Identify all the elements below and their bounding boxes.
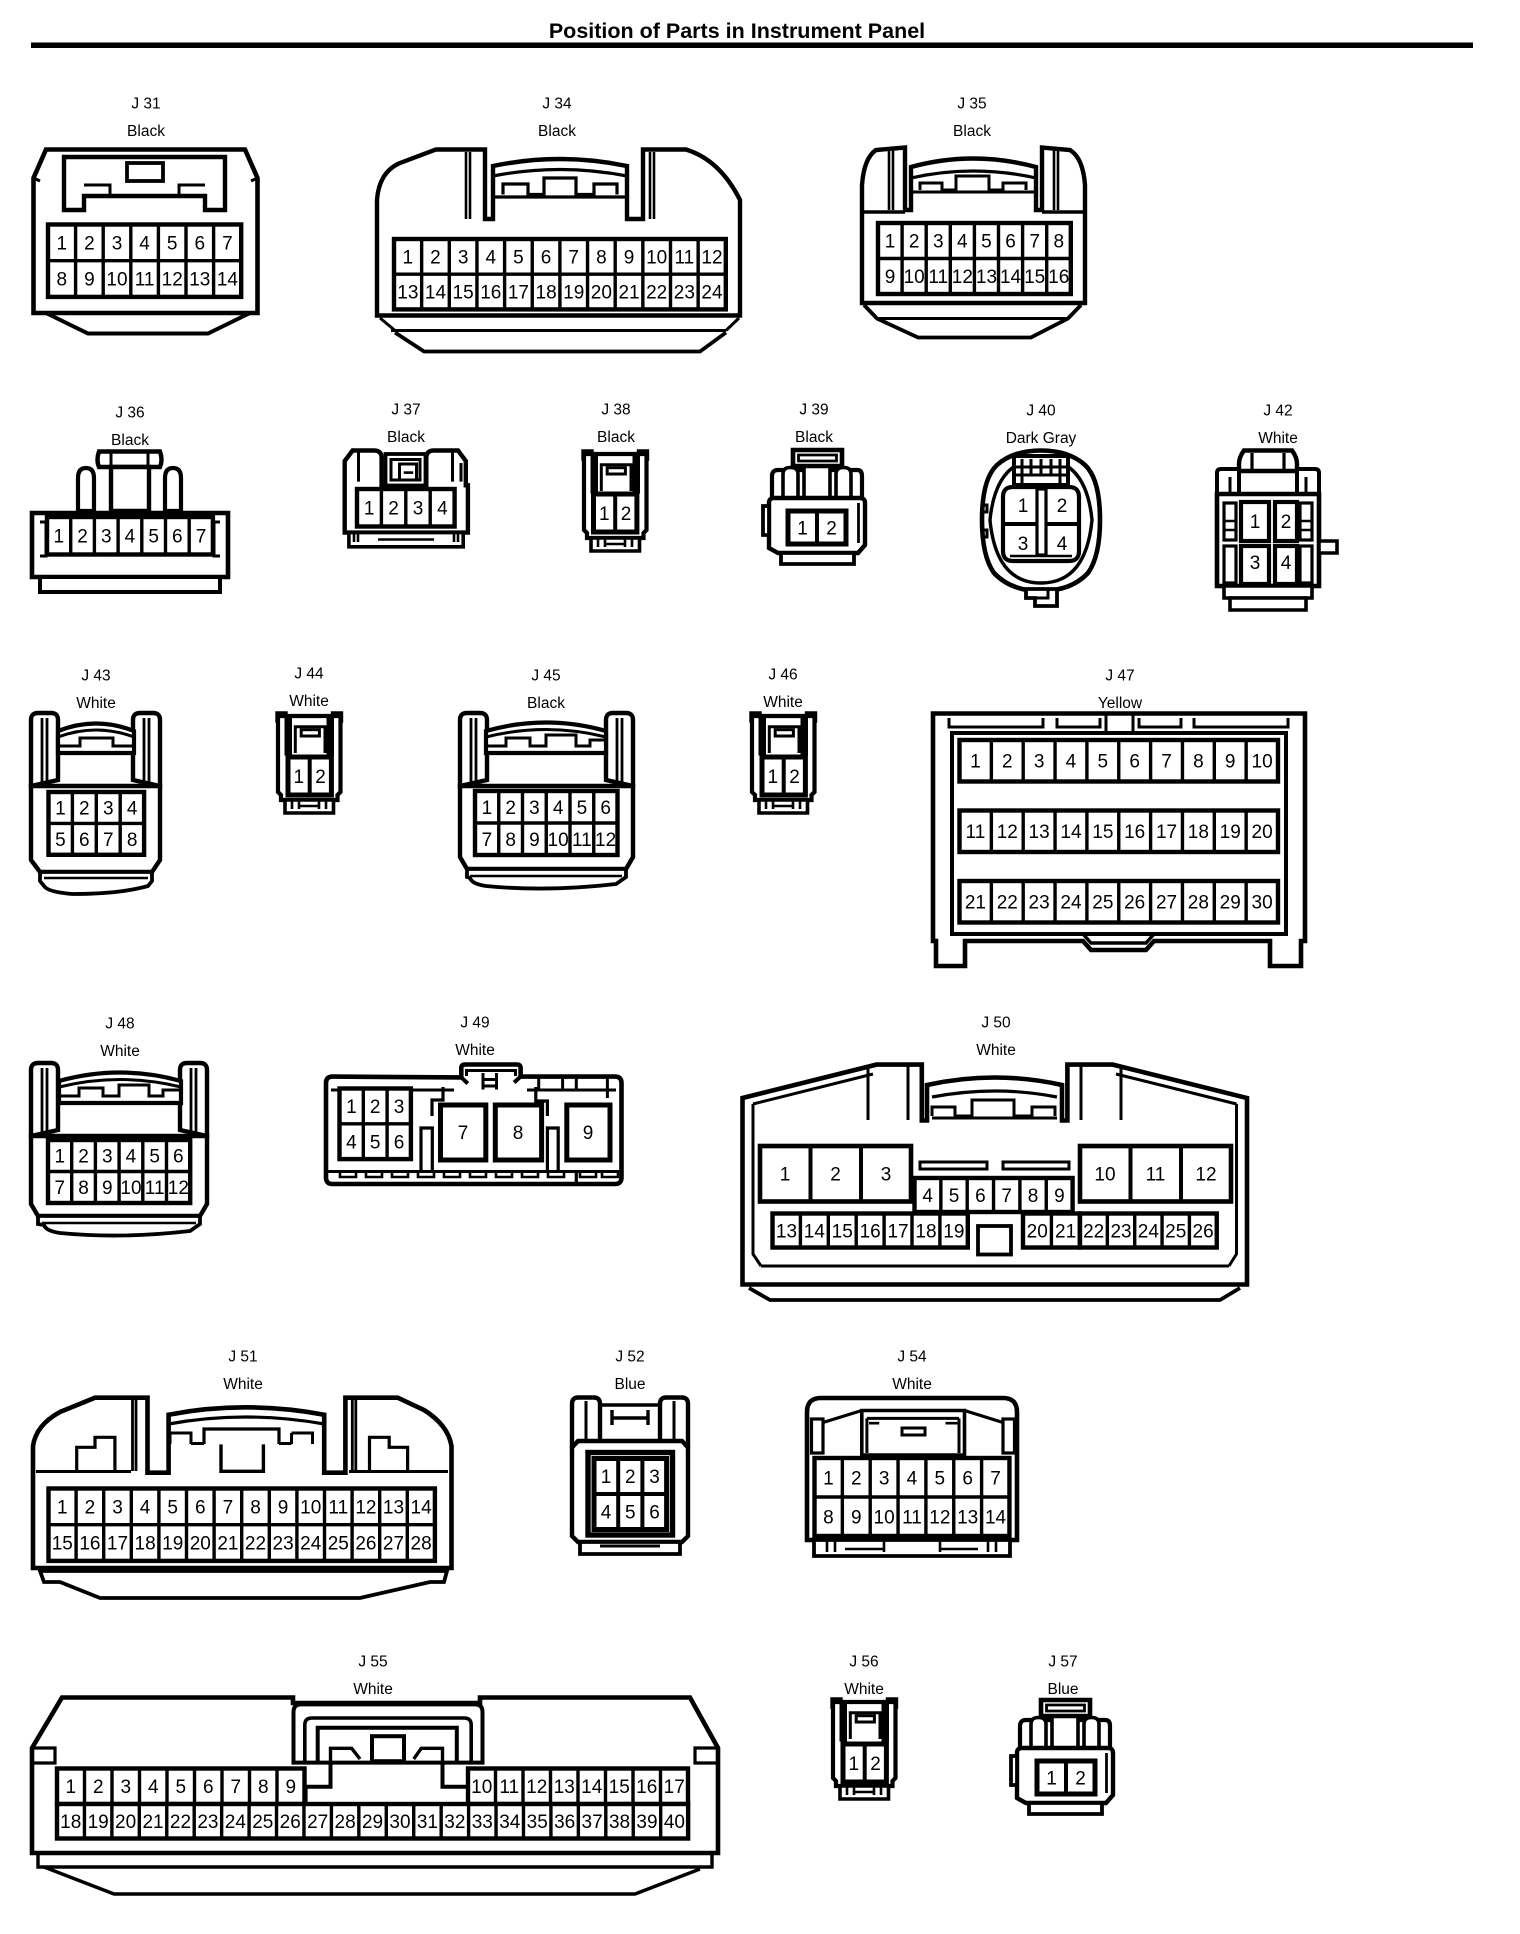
svg-text:6: 6: [173, 1147, 184, 1168]
svg-text:J 43: J 43: [81, 668, 110, 685]
svg-text:12: 12: [952, 267, 973, 288]
svg-text:2: 2: [93, 1777, 104, 1798]
svg-text:White: White: [892, 1376, 932, 1393]
svg-text:2: 2: [621, 504, 632, 525]
svg-text:1: 1: [1046, 1768, 1057, 1789]
svg-text:3: 3: [649, 1467, 660, 1488]
svg-text:1: 1: [54, 527, 65, 548]
svg-text:4: 4: [957, 232, 968, 253]
svg-text:19: 19: [943, 1221, 964, 1242]
svg-text:9: 9: [1225, 752, 1236, 773]
svg-text:1: 1: [849, 1754, 860, 1775]
svg-text:34: 34: [499, 1812, 521, 1833]
svg-text:1: 1: [57, 1498, 68, 1519]
svg-text:Black: Black: [953, 123, 991, 140]
svg-text:13: 13: [397, 283, 418, 304]
svg-text:22: 22: [170, 1812, 191, 1833]
svg-text:8: 8: [1193, 752, 1204, 773]
svg-text:Black: Black: [127, 123, 165, 140]
svg-text:2: 2: [789, 767, 800, 788]
svg-text:Black: Black: [527, 695, 565, 712]
svg-text:21: 21: [217, 1534, 238, 1555]
svg-text:29: 29: [1220, 893, 1241, 914]
svg-text:J 55: J 55: [358, 1654, 387, 1671]
svg-text:6: 6: [1005, 232, 1016, 253]
svg-text:36: 36: [554, 1812, 575, 1833]
svg-text:3: 3: [413, 499, 424, 520]
svg-text:9: 9: [529, 830, 540, 851]
svg-text:21: 21: [965, 893, 986, 914]
svg-text:7: 7: [568, 248, 579, 269]
svg-text:8: 8: [1053, 232, 1064, 253]
svg-text:7: 7: [103, 830, 114, 851]
svg-text:7: 7: [55, 1178, 66, 1199]
svg-text:17: 17: [887, 1221, 908, 1242]
svg-text:4: 4: [346, 1132, 357, 1153]
svg-text:4: 4: [127, 799, 138, 820]
svg-text:Black: Black: [795, 429, 833, 446]
svg-text:1: 1: [599, 504, 610, 525]
svg-text:2: 2: [388, 499, 399, 520]
svg-text:8: 8: [513, 1123, 524, 1144]
svg-text:31: 31: [417, 1812, 438, 1833]
svg-text:18: 18: [915, 1221, 936, 1242]
svg-text:5: 5: [981, 232, 992, 253]
svg-text:2: 2: [625, 1467, 636, 1488]
svg-text:28: 28: [1188, 893, 1209, 914]
svg-text:3: 3: [102, 1147, 113, 1168]
svg-text:23: 23: [674, 283, 695, 304]
svg-text:7: 7: [990, 1468, 1001, 1489]
svg-text:10: 10: [646, 248, 667, 269]
svg-text:9: 9: [885, 267, 896, 288]
svg-text:11: 11: [966, 822, 986, 843]
svg-text:4: 4: [1057, 534, 1068, 555]
svg-text:1: 1: [403, 248, 414, 269]
svg-text:8: 8: [823, 1507, 834, 1528]
svg-text:10: 10: [874, 1507, 895, 1528]
svg-text:2: 2: [1075, 1768, 1086, 1789]
svg-text:9: 9: [851, 1507, 862, 1528]
svg-text:26: 26: [280, 1812, 301, 1833]
svg-text:9: 9: [285, 1777, 296, 1798]
svg-text:J 57: J 57: [1048, 1654, 1077, 1671]
svg-text:2: 2: [315, 767, 326, 788]
svg-text:2: 2: [1002, 752, 1013, 773]
svg-text:11: 11: [902, 1507, 922, 1528]
svg-text:16: 16: [1124, 822, 1145, 843]
svg-text:26: 26: [355, 1534, 376, 1555]
svg-text:5: 5: [513, 248, 524, 269]
svg-text:14: 14: [1000, 267, 1022, 288]
svg-text:5: 5: [1098, 752, 1109, 773]
svg-text:11: 11: [1146, 1164, 1166, 1185]
svg-text:25: 25: [1165, 1221, 1186, 1242]
svg-text:12: 12: [168, 1178, 189, 1199]
svg-text:6: 6: [962, 1468, 973, 1489]
svg-text:6: 6: [975, 1186, 986, 1207]
svg-text:1: 1: [346, 1097, 357, 1118]
svg-text:5: 5: [149, 1147, 160, 1168]
svg-text:6: 6: [79, 830, 90, 851]
svg-text:11: 11: [328, 1498, 348, 1519]
svg-text:Blue: Blue: [1047, 1681, 1078, 1698]
svg-text:14: 14: [425, 283, 447, 304]
svg-text:6: 6: [541, 248, 552, 269]
svg-text:2: 2: [870, 1754, 881, 1775]
svg-text:6: 6: [195, 234, 206, 255]
svg-text:18: 18: [1188, 822, 1209, 843]
svg-text:White: White: [976, 1042, 1016, 1059]
svg-text:11: 11: [928, 267, 948, 288]
svg-text:23: 23: [197, 1812, 218, 1833]
svg-text:16: 16: [860, 1221, 881, 1242]
svg-text:19: 19: [1220, 822, 1241, 843]
svg-text:13: 13: [776, 1221, 797, 1242]
svg-text:1: 1: [65, 1777, 76, 1798]
svg-text:J 40: J 40: [1026, 403, 1056, 420]
svg-text:21: 21: [1055, 1221, 1076, 1242]
svg-text:17: 17: [664, 1777, 685, 1798]
svg-text:J 35: J 35: [957, 96, 986, 113]
svg-text:30: 30: [389, 1812, 410, 1833]
svg-text:J 36: J 36: [115, 405, 144, 422]
svg-text:15: 15: [609, 1777, 630, 1798]
svg-text:3: 3: [1034, 752, 1045, 773]
svg-text:1: 1: [768, 767, 779, 788]
svg-text:5: 5: [949, 1186, 960, 1207]
svg-text:3: 3: [458, 248, 469, 269]
svg-text:6: 6: [649, 1503, 660, 1524]
svg-text:White: White: [455, 1042, 495, 1059]
svg-text:1: 1: [1018, 496, 1029, 517]
svg-text:22: 22: [1083, 1221, 1104, 1242]
svg-text:11: 11: [674, 248, 694, 269]
svg-text:3: 3: [529, 798, 540, 819]
svg-text:10: 10: [120, 1178, 141, 1199]
svg-text:10: 10: [471, 1777, 492, 1798]
svg-text:4: 4: [126, 1147, 137, 1168]
svg-text:4: 4: [553, 798, 564, 819]
svg-text:25: 25: [252, 1812, 273, 1833]
svg-text:15: 15: [832, 1221, 853, 1242]
svg-text:6: 6: [203, 1777, 214, 1798]
svg-text:7: 7: [458, 1123, 469, 1144]
svg-text:3: 3: [879, 1468, 890, 1489]
svg-text:10: 10: [1252, 752, 1273, 773]
svg-text:3: 3: [101, 527, 112, 548]
svg-text:6: 6: [394, 1132, 405, 1153]
svg-text:23: 23: [1110, 1221, 1131, 1242]
svg-text:1: 1: [55, 1147, 66, 1168]
svg-text:38: 38: [609, 1812, 630, 1833]
svg-text:20: 20: [1027, 1221, 1048, 1242]
svg-text:8: 8: [596, 248, 607, 269]
svg-text:12: 12: [595, 830, 616, 851]
svg-text:5: 5: [55, 830, 66, 851]
svg-text:13: 13: [1029, 822, 1050, 843]
svg-text:J 39: J 39: [799, 402, 828, 419]
svg-text:White: White: [76, 695, 116, 712]
svg-text:23: 23: [273, 1534, 294, 1555]
svg-text:6: 6: [195, 1498, 206, 1519]
svg-text:4: 4: [907, 1468, 918, 1489]
svg-text:1: 1: [294, 767, 305, 788]
svg-text:7: 7: [196, 527, 207, 548]
svg-text:6: 6: [1129, 752, 1140, 773]
svg-text:10: 10: [106, 270, 127, 291]
svg-text:3: 3: [112, 234, 123, 255]
svg-text:J 47: J 47: [1105, 668, 1134, 685]
svg-text:2: 2: [370, 1097, 381, 1118]
svg-text:21: 21: [618, 283, 639, 304]
svg-text:35: 35: [527, 1812, 548, 1833]
svg-text:3: 3: [120, 1777, 131, 1798]
svg-text:8: 8: [78, 1178, 89, 1199]
svg-text:16: 16: [79, 1534, 100, 1555]
svg-text:J 31: J 31: [131, 96, 160, 113]
svg-text:1: 1: [797, 518, 808, 539]
svg-text:37: 37: [582, 1812, 603, 1833]
svg-text:1: 1: [601, 1467, 612, 1488]
svg-text:5: 5: [625, 1503, 636, 1524]
svg-text:19: 19: [563, 283, 584, 304]
svg-text:16: 16: [1048, 267, 1069, 288]
svg-text:7: 7: [482, 830, 493, 851]
svg-text:33: 33: [472, 1812, 493, 1833]
svg-text:1: 1: [823, 1468, 834, 1489]
svg-text:White: White: [223, 1376, 263, 1393]
svg-text:12: 12: [929, 1507, 950, 1528]
svg-text:12: 12: [997, 822, 1018, 843]
svg-text:J 56: J 56: [849, 1654, 878, 1671]
svg-text:J 37: J 37: [391, 402, 420, 419]
svg-text:6: 6: [172, 527, 183, 548]
svg-text:27: 27: [1156, 893, 1177, 914]
svg-text:5: 5: [167, 234, 178, 255]
svg-text:23: 23: [1029, 893, 1050, 914]
svg-text:4: 4: [1066, 752, 1077, 773]
svg-text:2: 2: [909, 232, 920, 253]
svg-text:10: 10: [300, 1498, 321, 1519]
svg-text:12: 12: [355, 1498, 376, 1519]
svg-text:Position of Parts in Instrumen: Position of Parts in Instrument Panel: [549, 19, 925, 43]
svg-text:5: 5: [370, 1132, 381, 1153]
svg-text:8: 8: [1028, 1186, 1039, 1207]
svg-text:8: 8: [258, 1777, 269, 1798]
svg-text:17: 17: [1156, 822, 1177, 843]
svg-text:22: 22: [245, 1534, 266, 1555]
svg-text:16: 16: [636, 1777, 657, 1798]
svg-text:20: 20: [1252, 822, 1273, 843]
svg-text:7: 7: [223, 1498, 234, 1519]
svg-text:3: 3: [394, 1097, 405, 1118]
svg-text:14: 14: [581, 1777, 603, 1798]
svg-text:14: 14: [217, 270, 239, 291]
svg-text:J 48: J 48: [105, 1016, 134, 1033]
svg-text:Black: Black: [387, 429, 425, 446]
svg-text:3: 3: [1018, 534, 1029, 555]
svg-text:9: 9: [278, 1498, 289, 1519]
svg-text:8: 8: [127, 830, 138, 851]
svg-text:11: 11: [499, 1777, 519, 1798]
svg-text:J 45: J 45: [531, 668, 560, 685]
svg-text:White: White: [1258, 430, 1298, 447]
svg-text:7: 7: [230, 1777, 241, 1798]
svg-text:15: 15: [1024, 267, 1045, 288]
svg-text:25: 25: [328, 1534, 349, 1555]
svg-text:7: 7: [222, 234, 233, 255]
svg-text:24: 24: [1138, 1221, 1160, 1242]
svg-text:14: 14: [985, 1507, 1007, 1528]
svg-text:J 51: J 51: [228, 1349, 257, 1366]
svg-text:1: 1: [1250, 512, 1261, 533]
svg-text:14: 14: [1060, 822, 1082, 843]
svg-text:14: 14: [411, 1498, 433, 1519]
svg-text:16: 16: [480, 283, 501, 304]
svg-text:24: 24: [1060, 893, 1082, 914]
svg-text:3: 3: [881, 1164, 892, 1185]
svg-text:4: 4: [922, 1186, 933, 1207]
svg-text:11: 11: [135, 270, 155, 291]
svg-text:15: 15: [453, 283, 474, 304]
svg-text:Black: Black: [538, 123, 576, 140]
svg-text:White: White: [289, 693, 329, 710]
svg-text:27: 27: [307, 1812, 328, 1833]
svg-text:4: 4: [601, 1503, 612, 1524]
svg-text:4: 4: [148, 1777, 159, 1798]
svg-text:2: 2: [826, 518, 837, 539]
svg-text:15: 15: [1092, 822, 1113, 843]
svg-text:J 38: J 38: [601, 402, 630, 419]
svg-text:J 44: J 44: [294, 666, 324, 683]
svg-text:4: 4: [437, 499, 448, 520]
svg-text:27: 27: [383, 1534, 404, 1555]
svg-text:4: 4: [485, 248, 496, 269]
svg-text:19: 19: [162, 1534, 183, 1555]
svg-text:J 34: J 34: [542, 96, 572, 113]
svg-text:12: 12: [701, 248, 722, 269]
svg-text:2: 2: [85, 1498, 96, 1519]
svg-text:5: 5: [148, 527, 159, 548]
svg-text:2: 2: [505, 798, 516, 819]
svg-text:13: 13: [189, 270, 210, 291]
svg-text:2: 2: [78, 1147, 89, 1168]
svg-text:18: 18: [60, 1812, 81, 1833]
svg-text:1: 1: [364, 499, 375, 520]
svg-text:24: 24: [225, 1812, 247, 1833]
svg-text:3: 3: [1250, 553, 1261, 574]
svg-text:11: 11: [145, 1178, 165, 1199]
svg-text:40: 40: [664, 1812, 685, 1833]
svg-text:10: 10: [1094, 1164, 1115, 1185]
svg-text:J 46: J 46: [768, 667, 797, 684]
svg-text:13: 13: [976, 267, 997, 288]
svg-text:17: 17: [107, 1534, 128, 1555]
svg-text:28: 28: [335, 1812, 356, 1833]
svg-text:7: 7: [1001, 1186, 1012, 1207]
svg-text:J 49: J 49: [460, 1015, 489, 1032]
svg-text:17: 17: [508, 283, 529, 304]
svg-text:7: 7: [1029, 232, 1040, 253]
svg-text:24: 24: [300, 1534, 322, 1555]
svg-text:7: 7: [1161, 752, 1172, 773]
svg-text:2: 2: [79, 799, 90, 820]
svg-text:26: 26: [1193, 1221, 1214, 1242]
svg-text:White: White: [844, 1681, 884, 1698]
svg-text:14: 14: [804, 1221, 826, 1242]
svg-text:15: 15: [52, 1534, 73, 1555]
svg-text:2: 2: [851, 1468, 862, 1489]
svg-text:39: 39: [636, 1812, 657, 1833]
svg-text:32: 32: [444, 1812, 465, 1833]
svg-text:2: 2: [1281, 512, 1292, 533]
svg-text:4: 4: [139, 234, 150, 255]
svg-text:22: 22: [997, 893, 1018, 914]
svg-text:4: 4: [140, 1498, 151, 1519]
svg-text:8: 8: [57, 270, 68, 291]
svg-text:White: White: [353, 1681, 393, 1698]
svg-text:30: 30: [1252, 893, 1273, 914]
svg-text:2: 2: [1057, 496, 1068, 517]
svg-text:25: 25: [1092, 893, 1113, 914]
svg-text:13: 13: [383, 1498, 404, 1519]
svg-text:2: 2: [430, 248, 441, 269]
svg-text:28: 28: [411, 1534, 432, 1555]
svg-text:9: 9: [624, 248, 635, 269]
svg-text:5: 5: [577, 798, 588, 819]
svg-text:13: 13: [957, 1507, 978, 1528]
svg-text:4: 4: [125, 527, 136, 548]
svg-text:2: 2: [84, 234, 95, 255]
svg-text:J 42: J 42: [1263, 403, 1292, 420]
svg-text:11: 11: [572, 830, 592, 851]
svg-text:4: 4: [1281, 553, 1292, 574]
svg-text:6: 6: [600, 798, 611, 819]
svg-text:12: 12: [526, 1777, 547, 1798]
svg-text:Yellow: Yellow: [1098, 695, 1143, 712]
svg-text:18: 18: [536, 283, 557, 304]
svg-text:19: 19: [88, 1812, 109, 1833]
svg-text:1: 1: [55, 799, 66, 820]
svg-text:1: 1: [57, 234, 68, 255]
svg-text:20: 20: [115, 1812, 136, 1833]
svg-text:8: 8: [505, 830, 516, 851]
svg-text:3: 3: [933, 232, 944, 253]
svg-text:2: 2: [77, 527, 88, 548]
svg-text:9: 9: [583, 1123, 594, 1144]
svg-text:24: 24: [701, 283, 723, 304]
svg-text:J 54: J 54: [897, 1349, 927, 1366]
svg-text:20: 20: [591, 283, 612, 304]
svg-text:2: 2: [830, 1164, 841, 1185]
svg-text:1: 1: [885, 232, 896, 253]
svg-text:White: White: [763, 694, 803, 711]
svg-text:Black: Black: [597, 429, 635, 446]
svg-text:9: 9: [84, 270, 95, 291]
svg-text:12: 12: [1195, 1164, 1216, 1185]
svg-text:5: 5: [167, 1498, 178, 1519]
svg-text:13: 13: [554, 1777, 575, 1798]
svg-text:Blue: Blue: [614, 1376, 645, 1393]
svg-text:26: 26: [1124, 893, 1145, 914]
svg-text:5: 5: [935, 1468, 946, 1489]
svg-text:8: 8: [250, 1498, 261, 1519]
svg-text:12: 12: [162, 270, 183, 291]
svg-text:10: 10: [548, 830, 569, 851]
svg-text:Dark Gray: Dark Gray: [1006, 430, 1077, 447]
svg-text:5: 5: [175, 1777, 186, 1798]
